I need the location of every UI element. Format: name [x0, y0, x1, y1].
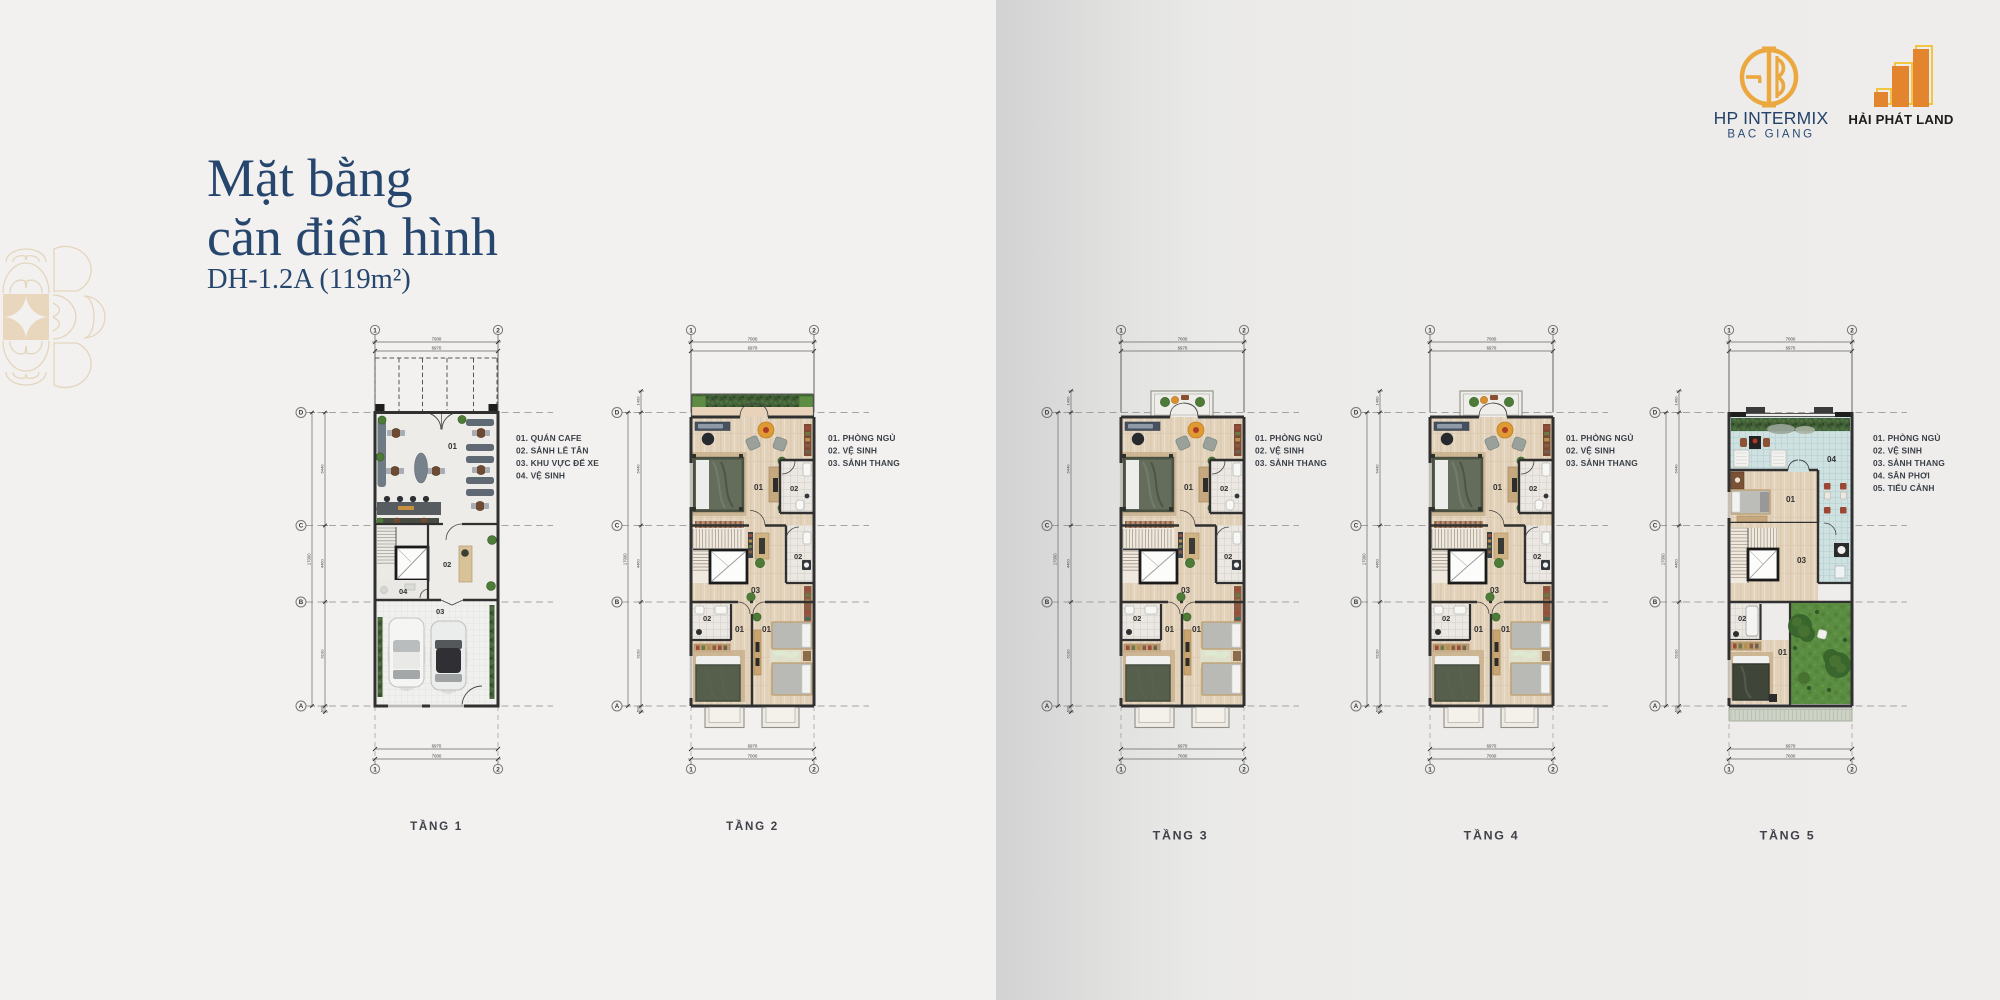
svg-text:01. PHÒNG NGỦ: 01. PHÒNG NGỦ — [1255, 432, 1323, 443]
svg-text:02. VỆ SINH: 02. VỆ SINH — [828, 445, 877, 456]
svg-text:7000: 7000 — [748, 754, 758, 759]
svg-text:C: C — [1653, 523, 1658, 530]
svg-text:D: D — [1653, 410, 1658, 417]
svg-text:1: 1 — [1119, 327, 1123, 334]
svg-text:02: 02 — [1533, 552, 1541, 561]
svg-text:17000: 17000 — [623, 553, 628, 565]
svg-text:D: D — [615, 410, 620, 417]
svg-text:02. VỆ SINH: 02. VỆ SINH — [1873, 445, 1922, 456]
svg-text:02: 02 — [1442, 614, 1450, 623]
svg-text:01: 01 — [1165, 625, 1175, 634]
svg-text:1: 1 — [1727, 766, 1731, 773]
svg-text:Mặt bằng: Mặt bằng — [207, 148, 412, 208]
svg-text:03: 03 — [1181, 586, 1191, 595]
svg-text:4460: 4460 — [1674, 559, 1679, 569]
svg-text:6970: 6970 — [1487, 744, 1497, 749]
svg-text:4460: 4460 — [320, 559, 325, 569]
svg-text:HP INTERMIX: HP INTERMIX — [1714, 108, 1829, 128]
svg-text:7000: 7000 — [1786, 754, 1796, 759]
svg-text:2: 2 — [1850, 327, 1854, 334]
svg-text:4460: 4460 — [636, 559, 641, 569]
svg-text:1: 1 — [373, 327, 377, 334]
svg-text:1400: 1400 — [1375, 396, 1380, 406]
svg-text:500: 500 — [637, 706, 641, 712]
svg-text:A: A — [299, 703, 304, 710]
svg-text:02: 02 — [1738, 614, 1746, 623]
svg-text:04: 04 — [399, 587, 408, 596]
svg-text:A: A — [1653, 703, 1658, 710]
svg-text:7000: 7000 — [1786, 337, 1796, 342]
svg-text:17000: 17000 — [307, 553, 312, 565]
svg-text:04: 04 — [1827, 455, 1837, 464]
svg-text:01: 01 — [754, 483, 764, 492]
svg-text:01: 01 — [762, 625, 772, 634]
svg-text:6100: 6100 — [636, 649, 641, 659]
svg-text:01: 01 — [1786, 495, 1796, 504]
svg-text:500: 500 — [1067, 706, 1071, 712]
svg-text:DH-1.2A (119m²): DH-1.2A (119m²) — [207, 264, 411, 295]
svg-text:6970: 6970 — [1178, 346, 1188, 351]
svg-text:7000: 7000 — [1178, 337, 1188, 342]
svg-text:B: B — [1653, 599, 1658, 606]
svg-text:500: 500 — [321, 706, 325, 712]
svg-text:01: 01 — [1184, 483, 1194, 492]
svg-text:D: D — [299, 410, 304, 417]
svg-text:2: 2 — [496, 327, 500, 334]
svg-text:04. SÂN PHƠI: 04. SÂN PHƠI — [1873, 469, 1930, 480]
svg-text:1: 1 — [373, 766, 377, 773]
svg-text:02: 02 — [1133, 614, 1141, 623]
svg-text:B: B — [1354, 599, 1359, 606]
svg-text:01: 01 — [1501, 625, 1511, 634]
svg-text:6440: 6440 — [1674, 464, 1679, 474]
svg-text:02. VỆ SINH: 02. VỆ SINH — [1566, 445, 1615, 456]
svg-text:D: D — [1045, 410, 1050, 417]
svg-text:2: 2 — [1551, 327, 1555, 334]
svg-text:2: 2 — [1551, 766, 1555, 773]
svg-text:HẢI PHÁT LAND: HẢI PHÁT LAND — [1848, 112, 1953, 127]
svg-text:căn điển hình: căn điển hình — [207, 207, 498, 267]
svg-text:6970: 6970 — [1178, 744, 1188, 749]
svg-text:2: 2 — [812, 766, 816, 773]
svg-text:03. KHU VỰC ĐỂ XE: 03. KHU VỰC ĐỂ XE — [516, 457, 599, 468]
svg-text:6100: 6100 — [1674, 649, 1679, 659]
svg-text:1400: 1400 — [636, 396, 641, 406]
svg-text:02: 02 — [443, 560, 451, 569]
svg-text:1: 1 — [1727, 327, 1731, 334]
svg-text:6100: 6100 — [320, 649, 325, 659]
svg-text:7000: 7000 — [1487, 337, 1497, 342]
svg-text:03: 03 — [1797, 556, 1807, 565]
svg-text:02: 02 — [794, 552, 802, 561]
svg-text:1400: 1400 — [1066, 396, 1071, 406]
svg-text:03: 03 — [436, 607, 444, 616]
svg-text:6440: 6440 — [320, 464, 325, 474]
svg-text:6970: 6970 — [1487, 346, 1497, 351]
svg-text:6100: 6100 — [1066, 649, 1071, 659]
svg-text:TẦNG 2: TẦNG 2 — [726, 820, 779, 833]
svg-text:2: 2 — [1242, 327, 1246, 334]
svg-text:C: C — [299, 523, 304, 530]
svg-text:6970: 6970 — [432, 744, 442, 749]
svg-text:TẦNG 5: TẦNG 5 — [1760, 828, 1816, 843]
svg-text:A: A — [1354, 703, 1359, 710]
svg-text:01: 01 — [1474, 625, 1484, 634]
svg-text:02: 02 — [1220, 484, 1228, 493]
svg-text:05. TIỂU CẢNH: 05. TIỂU CẢNH — [1873, 482, 1935, 493]
svg-text:1: 1 — [1119, 766, 1123, 773]
svg-text:02: 02 — [703, 614, 711, 623]
svg-text:03. SẢNH THANG: 03. SẢNH THANG — [1873, 457, 1945, 468]
svg-text:03. SẢNH THANG: 03. SẢNH THANG — [828, 457, 900, 468]
svg-text:BAC GIANG: BAC GIANG — [1727, 129, 1814, 141]
svg-text:6970: 6970 — [1786, 346, 1796, 351]
svg-text:B: B — [615, 599, 620, 606]
svg-text:4460: 4460 — [1066, 559, 1071, 569]
svg-text:1400: 1400 — [1674, 396, 1679, 406]
svg-text:17000: 17000 — [1661, 553, 1666, 565]
svg-text:7000: 7000 — [1178, 754, 1188, 759]
svg-text:6440: 6440 — [1375, 464, 1380, 474]
svg-text:03: 03 — [751, 586, 761, 595]
svg-text:6970: 6970 — [748, 744, 758, 749]
svg-text:C: C — [1045, 523, 1050, 530]
svg-text:500: 500 — [1675, 706, 1679, 712]
svg-text:TẦNG 3: TẦNG 3 — [1153, 828, 1209, 843]
svg-text:7000: 7000 — [432, 754, 442, 759]
svg-text:4460: 4460 — [1375, 559, 1380, 569]
svg-text:6440: 6440 — [636, 464, 641, 474]
svg-text:1: 1 — [1428, 327, 1432, 334]
svg-text:01: 01 — [448, 442, 457, 451]
svg-text:1: 1 — [1428, 766, 1432, 773]
svg-text:01: 01 — [1192, 625, 1202, 634]
svg-text:6100: 6100 — [1375, 649, 1380, 659]
svg-text:03. SẢNH THANG: 03. SẢNH THANG — [1255, 457, 1327, 468]
svg-text:A: A — [1045, 703, 1050, 710]
svg-text:2: 2 — [812, 327, 816, 334]
svg-text:01. PHÒNG NGỦ: 01. PHÒNG NGỦ — [828, 432, 896, 443]
svg-text:TẦNG 4: TẦNG 4 — [1464, 828, 1520, 843]
svg-text:500: 500 — [1376, 706, 1380, 712]
svg-text:1: 1 — [689, 327, 693, 334]
svg-text:C: C — [615, 523, 620, 530]
svg-text:03: 03 — [1490, 586, 1500, 595]
svg-text:6970: 6970 — [748, 346, 758, 351]
svg-text:D: D — [1354, 410, 1359, 417]
svg-text:02. VỆ SINH: 02. VỆ SINH — [1255, 445, 1304, 456]
svg-text:01. PHÒNG NGỦ: 01. PHÒNG NGỦ — [1566, 432, 1634, 443]
svg-text:7000: 7000 — [1487, 754, 1497, 759]
svg-text:01. PHÒNG NGỦ: 01. PHÒNG NGỦ — [1873, 432, 1941, 443]
svg-text:17000: 17000 — [1362, 553, 1367, 565]
svg-text:2: 2 — [1850, 766, 1854, 773]
svg-text:B: B — [299, 599, 304, 606]
svg-text:02: 02 — [1529, 484, 1537, 493]
svg-text:17000: 17000 — [1053, 553, 1058, 565]
svg-text:TẦNG 1: TẦNG 1 — [410, 820, 463, 833]
svg-text:2: 2 — [496, 766, 500, 773]
svg-text:C: C — [1354, 523, 1359, 530]
svg-text:04. VỆ SINH: 04. VỆ SINH — [516, 469, 565, 480]
svg-text:1: 1 — [689, 766, 693, 773]
svg-text:01: 01 — [1493, 483, 1503, 492]
svg-text:6970: 6970 — [432, 346, 442, 351]
svg-text:7000: 7000 — [432, 337, 442, 342]
svg-text:02: 02 — [1224, 552, 1232, 561]
svg-text:B: B — [1045, 599, 1050, 606]
svg-text:03. SẢNH THANG: 03. SẢNH THANG — [1566, 457, 1638, 468]
svg-text:01: 01 — [1778, 648, 1788, 657]
svg-text:02: 02 — [790, 484, 798, 493]
svg-text:6440: 6440 — [1066, 464, 1071, 474]
svg-text:02. SẢNH LỄ TÂN: 02. SẢNH LỄ TÂN — [516, 445, 589, 456]
svg-text:01: 01 — [735, 625, 745, 634]
svg-text:A: A — [615, 703, 620, 710]
svg-text:6970: 6970 — [1786, 744, 1796, 749]
svg-text:01. QUÁN CAFE: 01. QUÁN CAFE — [516, 432, 582, 443]
svg-text:2: 2 — [1242, 766, 1246, 773]
svg-text:7000: 7000 — [748, 337, 758, 342]
